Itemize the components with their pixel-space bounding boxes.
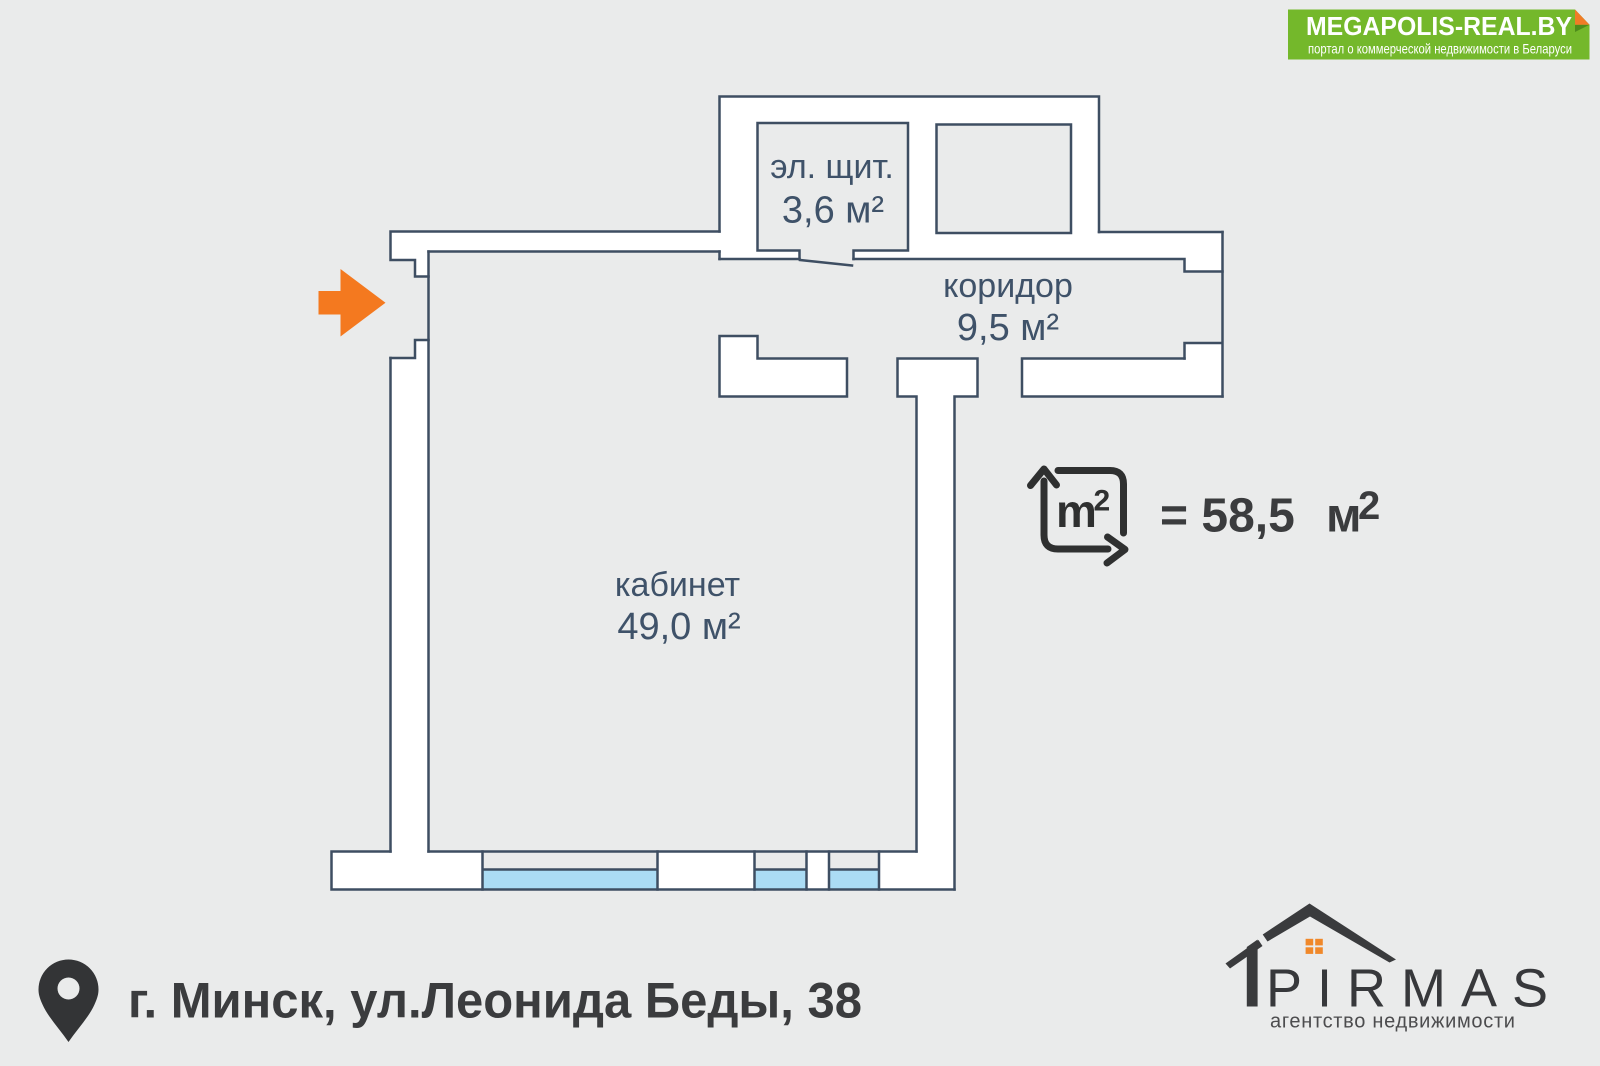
svg-text:агентство недвижимости: агентство недвижимости xyxy=(1270,1011,1516,1033)
svg-text:2: 2 xyxy=(1094,485,1111,518)
svg-text:9,5 м²: 9,5 м² xyxy=(957,307,1059,349)
svg-text:портал о коммерческой недвижим: портал о коммерческой недвижимости в Бел… xyxy=(1308,42,1572,57)
svg-text:MEGAPOLIS-REAL.BY: MEGAPOLIS-REAL.BY xyxy=(1306,13,1572,41)
svg-text:2: 2 xyxy=(1358,484,1380,528)
svg-text:49,0 м²: 49,0 м² xyxy=(617,606,740,648)
svg-text:г. Минск, ул.Леонида Беды, 38: г. Минск, ул.Леонида Беды, 38 xyxy=(128,973,862,1029)
svg-text:кабинет: кабинет xyxy=(615,566,740,604)
svg-text:PIRMAS: PIRMAS xyxy=(1266,959,1563,1019)
svg-text:коридор: коридор xyxy=(943,267,1073,305)
svg-text:эл. щит.: эл. щит. xyxy=(770,148,894,186)
svg-text:3,6 м²: 3,6 м² xyxy=(782,190,884,232)
svg-text:m: m xyxy=(1056,485,1097,537)
svg-text:м: м xyxy=(1326,490,1362,543)
svg-text:= 58,5: = 58,5 xyxy=(1160,490,1295,543)
